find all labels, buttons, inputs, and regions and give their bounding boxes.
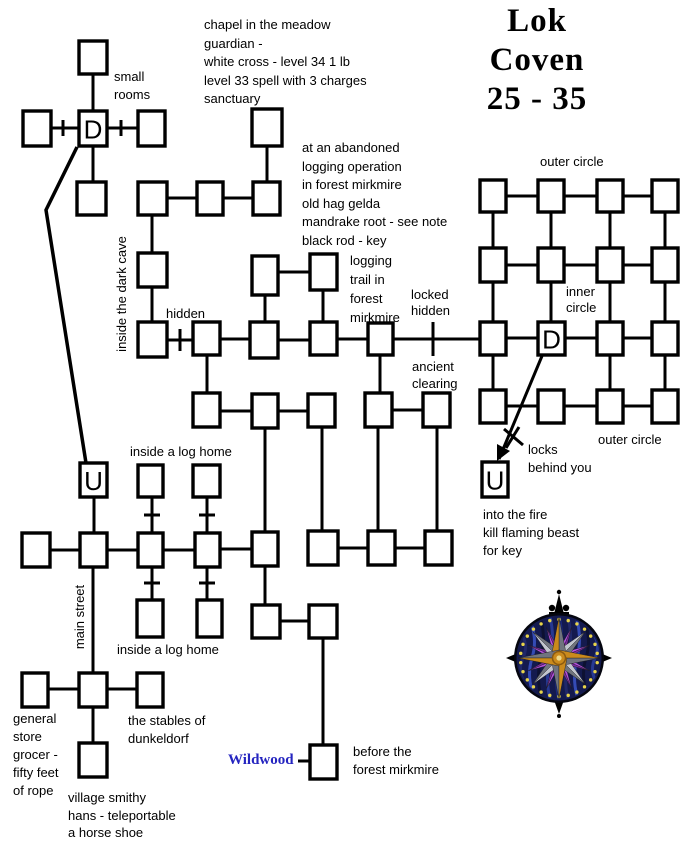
room-letter-u-west: U: [84, 466, 103, 496]
label-wildwood: Wildwood: [228, 751, 294, 769]
room-st-5: [252, 532, 278, 566]
title-line: Lok: [437, 2, 637, 41]
label-main-street: main street: [71, 571, 89, 663]
label-locks-behind-you: locksbehind you: [528, 441, 592, 477]
label-locked-hidden: lockedhidden: [411, 287, 450, 319]
label-line: the stables of: [128, 712, 205, 730]
room-cg-r4c1: [480, 390, 506, 423]
room-hid-1: [138, 322, 167, 357]
label-line: fifty feet: [13, 764, 59, 782]
label-line: inner: [566, 284, 596, 300]
room-cg-r3c4: [652, 322, 678, 355]
room-cg-r4c2: [538, 390, 564, 423]
room-ww: [310, 745, 337, 779]
label-line: level 33 spell with 3 charges: [204, 72, 367, 91]
page-title: Lok Coven 25 - 35: [437, 2, 637, 119]
title-line: 25 - 35: [437, 80, 637, 119]
label-line: locked: [411, 287, 450, 303]
room-cg-r4c4: [652, 390, 678, 423]
label-small-rooms: smallrooms: [114, 68, 150, 104]
room-cave-1: [138, 253, 167, 287]
label-line: hans - teleportable: [68, 807, 176, 825]
room-hid-3: [250, 322, 278, 358]
room-st-2: [80, 533, 107, 567]
room-vg-3: [137, 673, 163, 707]
label-into-the-fire: into the firekill flaming beastfor key: [483, 506, 579, 560]
label-line: ancient: [412, 358, 458, 375]
compass-rose: [506, 590, 612, 718]
room-log-a: [252, 256, 278, 295]
label-line: in forest mirkmire: [302, 176, 447, 195]
room-st-3: [138, 533, 163, 567]
room-hid-4: [310, 322, 337, 355]
label-line: circle: [566, 300, 596, 316]
label-line: inside a log home: [130, 443, 232, 461]
label-line: of rope: [13, 782, 59, 800]
label-line: village smithy: [68, 789, 176, 807]
room-st-1: [22, 533, 50, 567]
room-bl-1: [137, 600, 163, 637]
label-line: inside a log home: [117, 641, 219, 659]
room-cg-r1c1: [480, 180, 506, 212]
room-tw-2: [309, 605, 337, 638]
room-lg-2: [197, 182, 223, 215]
room-anc-2: [252, 394, 278, 428]
label-line: inside the dark cave: [113, 224, 131, 364]
title-line: Coven: [437, 41, 637, 80]
room-st-6: [308, 531, 338, 565]
label-line: chapel in the meadow: [204, 16, 367, 35]
map-diagram: DUDU: [0, 0, 694, 850]
label-abandoned-note: at an abandonedlogging operationin fores…: [302, 139, 447, 250]
label-stables: the stables ofdunkeldorf: [128, 712, 205, 748]
label-line: forest: [350, 289, 400, 308]
label-line: Wildwood: [228, 751, 294, 769]
room-hid-5: [368, 323, 393, 355]
label-line: into the fire: [483, 506, 579, 524]
label-line: small: [114, 68, 150, 86]
label-line: hidden: [411, 303, 450, 319]
room-sr-right: [138, 111, 165, 146]
label-line: logging operation: [302, 158, 447, 177]
label-general-store: generalstoregrocer -fifty feetof rope: [13, 710, 59, 800]
label-line: dunkeldorf: [128, 730, 205, 748]
label-inner-circle: innercircle: [566, 284, 596, 316]
label-village-smithy: village smithyhans - teleportablea horse…: [68, 789, 176, 842]
label-line: before the: [353, 743, 439, 761]
room-cg-r2c2: [538, 248, 564, 282]
label-line: guardian -: [204, 35, 367, 54]
label-line: at an abandoned: [302, 139, 447, 158]
label-line: general: [13, 710, 59, 728]
room-st-7: [368, 531, 395, 565]
room-lh-1: [138, 465, 163, 497]
room-bl-2: [197, 600, 222, 637]
label-line: store: [13, 728, 59, 746]
label-line: forest mirkmire: [353, 761, 439, 779]
label-before-forest: before theforest mirkmire: [353, 743, 439, 779]
room-lh-2: [193, 465, 220, 497]
room-anc-5: [423, 393, 450, 427]
label-line: hidden: [166, 305, 205, 323]
room-chapel: [252, 109, 282, 146]
room-cg-r2c3: [597, 248, 623, 282]
room-vg-1: [22, 673, 48, 707]
label-line: rooms: [114, 86, 150, 104]
label-outer-circle-top: outer circle: [540, 153, 604, 171]
label-line: outer circle: [598, 431, 662, 449]
room-anc-4: [365, 393, 392, 427]
room-cg-r1c4: [652, 180, 678, 212]
room-cg-r2c4: [652, 248, 678, 282]
label-line: grocer -: [13, 746, 59, 764]
label-outer-circle-bottom: outer circle: [598, 431, 662, 449]
room-log-b: [310, 254, 337, 290]
label-line: old hag gelda: [302, 195, 447, 214]
room-sr-bottom: [77, 182, 106, 215]
label-line: white cross - level 34 1 lb: [204, 53, 367, 72]
label-inside-log-home-upper: inside a log home: [130, 443, 232, 461]
room-lg-1: [138, 182, 167, 215]
label-line: clearing: [412, 375, 458, 392]
room-cg-r1c3: [597, 180, 623, 212]
room-letter-u-east: U: [486, 466, 505, 496]
room-vg-4: [79, 743, 107, 777]
label-chapel-note: chapel in the meadowguardian -white cros…: [204, 16, 367, 109]
room-lg-3: [253, 182, 280, 215]
label-line: mandrake root - see note: [302, 213, 447, 232]
label-line: kill flaming beast: [483, 524, 579, 542]
label-ancient-clearing: ancientclearing: [412, 358, 458, 392]
lok-coven-map-page: DUDU chapel in the meadowguardian -white…: [0, 0, 694, 850]
room-anc-3: [308, 394, 335, 427]
room-hid-2: [193, 322, 220, 355]
label-line: a horse shoe: [68, 824, 176, 842]
label-hidden-label: hidden: [166, 305, 205, 323]
label-line: logging: [350, 251, 400, 270]
label-line: outer circle: [540, 153, 604, 171]
label-inside-dark-cave: inside the dark cave: [113, 224, 131, 364]
label-line: behind you: [528, 459, 592, 477]
label-line: trail in: [350, 270, 400, 289]
room-letter-sr-d: D: [84, 115, 103, 145]
label-line: black rod - key: [302, 232, 447, 251]
label-line: main street: [71, 571, 89, 663]
room-letter-cg-r3c2: D: [542, 325, 561, 355]
room-st-8: [425, 531, 452, 565]
room-sr-left: [23, 111, 51, 146]
label-line: mirkmire: [350, 308, 400, 327]
room-sr-top: [79, 41, 107, 74]
room-anc-1: [193, 393, 220, 427]
label-line: sanctuary: [204, 90, 367, 109]
label-line: for key: [483, 542, 579, 560]
room-tw-1: [252, 605, 280, 638]
label-logging-trail: loggingtrail inforestmirkmire: [350, 251, 400, 327]
label-line: locks: [528, 441, 592, 459]
room-vg-2: [79, 673, 107, 707]
room-cg-r3c1: [480, 322, 506, 355]
room-cg-r2c1: [480, 248, 506, 282]
room-cg-r1c2: [538, 180, 564, 212]
room-cg-r3c3: [597, 322, 623, 355]
room-cg-r4c3: [597, 390, 623, 423]
room-st-4: [195, 533, 220, 567]
label-inside-log-home-lower: inside a log home: [117, 641, 219, 659]
